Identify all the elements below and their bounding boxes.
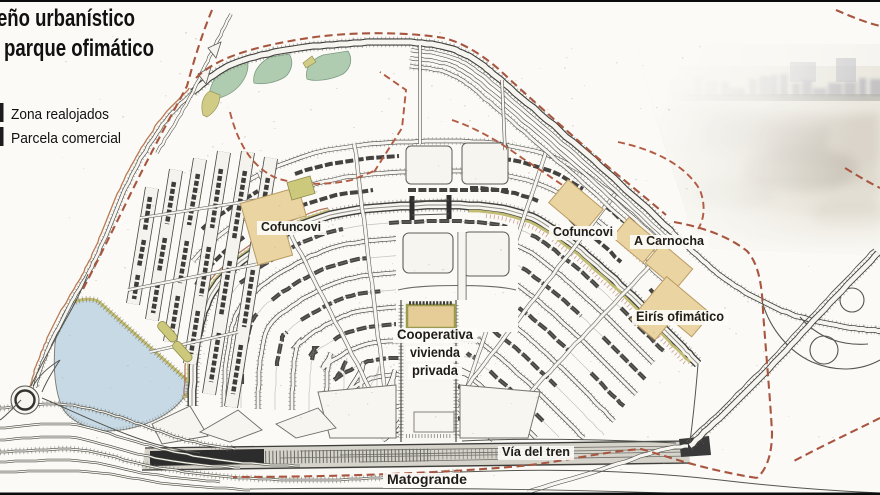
svg-text:Zona realojados: Zona realojados (11, 107, 109, 123)
svg-text:Vía del tren: Vía del tren (502, 444, 570, 459)
svg-text:eño urbanístico: eño urbanístico (0, 5, 135, 32)
svg-text:Eirís ofimático: Eirís ofimático (636, 309, 724, 324)
svg-text:Parcela comercial: Parcela comercial (11, 131, 121, 147)
svg-text:Cofuncovi: Cofuncovi (261, 219, 321, 234)
svg-text:Matogrande: Matogrande (387, 472, 468, 487)
svg-text:Cofuncovi: Cofuncovi (553, 224, 613, 239)
svg-text:A Carnocha: A Carnocha (634, 233, 705, 248)
svg-text:vivienda: vivienda (410, 345, 460, 360)
svg-text:Cooperativa: Cooperativa (397, 327, 473, 342)
svg-text:parque ofimático: parque ofimático (4, 35, 154, 62)
svg-text:privada: privada (412, 363, 458, 378)
